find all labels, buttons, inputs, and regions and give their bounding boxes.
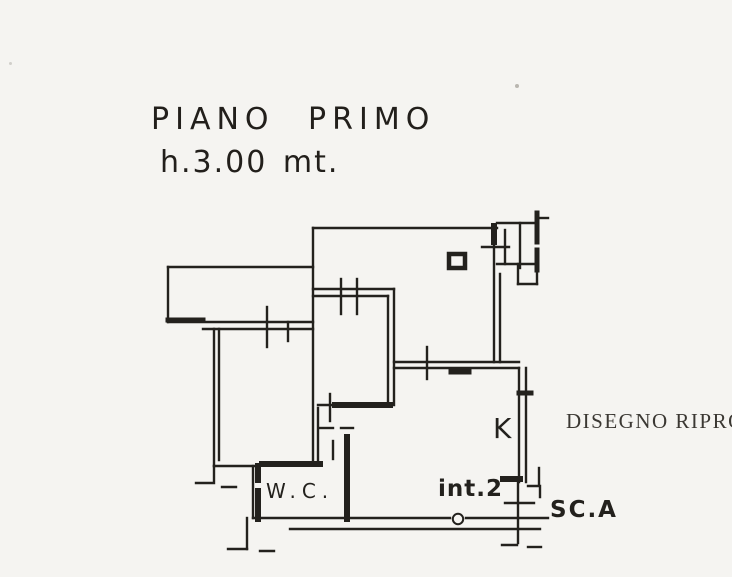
room-label-kitchen: K <box>493 412 511 445</box>
unit-label-int2: int.2 <box>438 476 503 502</box>
plan-height-note: h.3.00 mt. <box>160 145 339 180</box>
floor-plan-page: PIANO PRIMO h.3.00 mt. W.C. K int.2 SC.A… <box>0 0 732 577</box>
scan-speck <box>9 62 12 65</box>
room-label-wc: W.C. <box>266 479 334 503</box>
walls-thick <box>168 213 537 519</box>
reproduction-stamp-text: DISEGNO RIPRO <box>566 409 732 434</box>
scan-speck <box>515 84 519 88</box>
staircase-label-sca: SC.A <box>550 497 618 523</box>
plan-title: PIANO PRIMO <box>151 102 435 137</box>
flue-square-symbol <box>449 254 465 268</box>
floor-plan-drawing <box>0 0 732 577</box>
